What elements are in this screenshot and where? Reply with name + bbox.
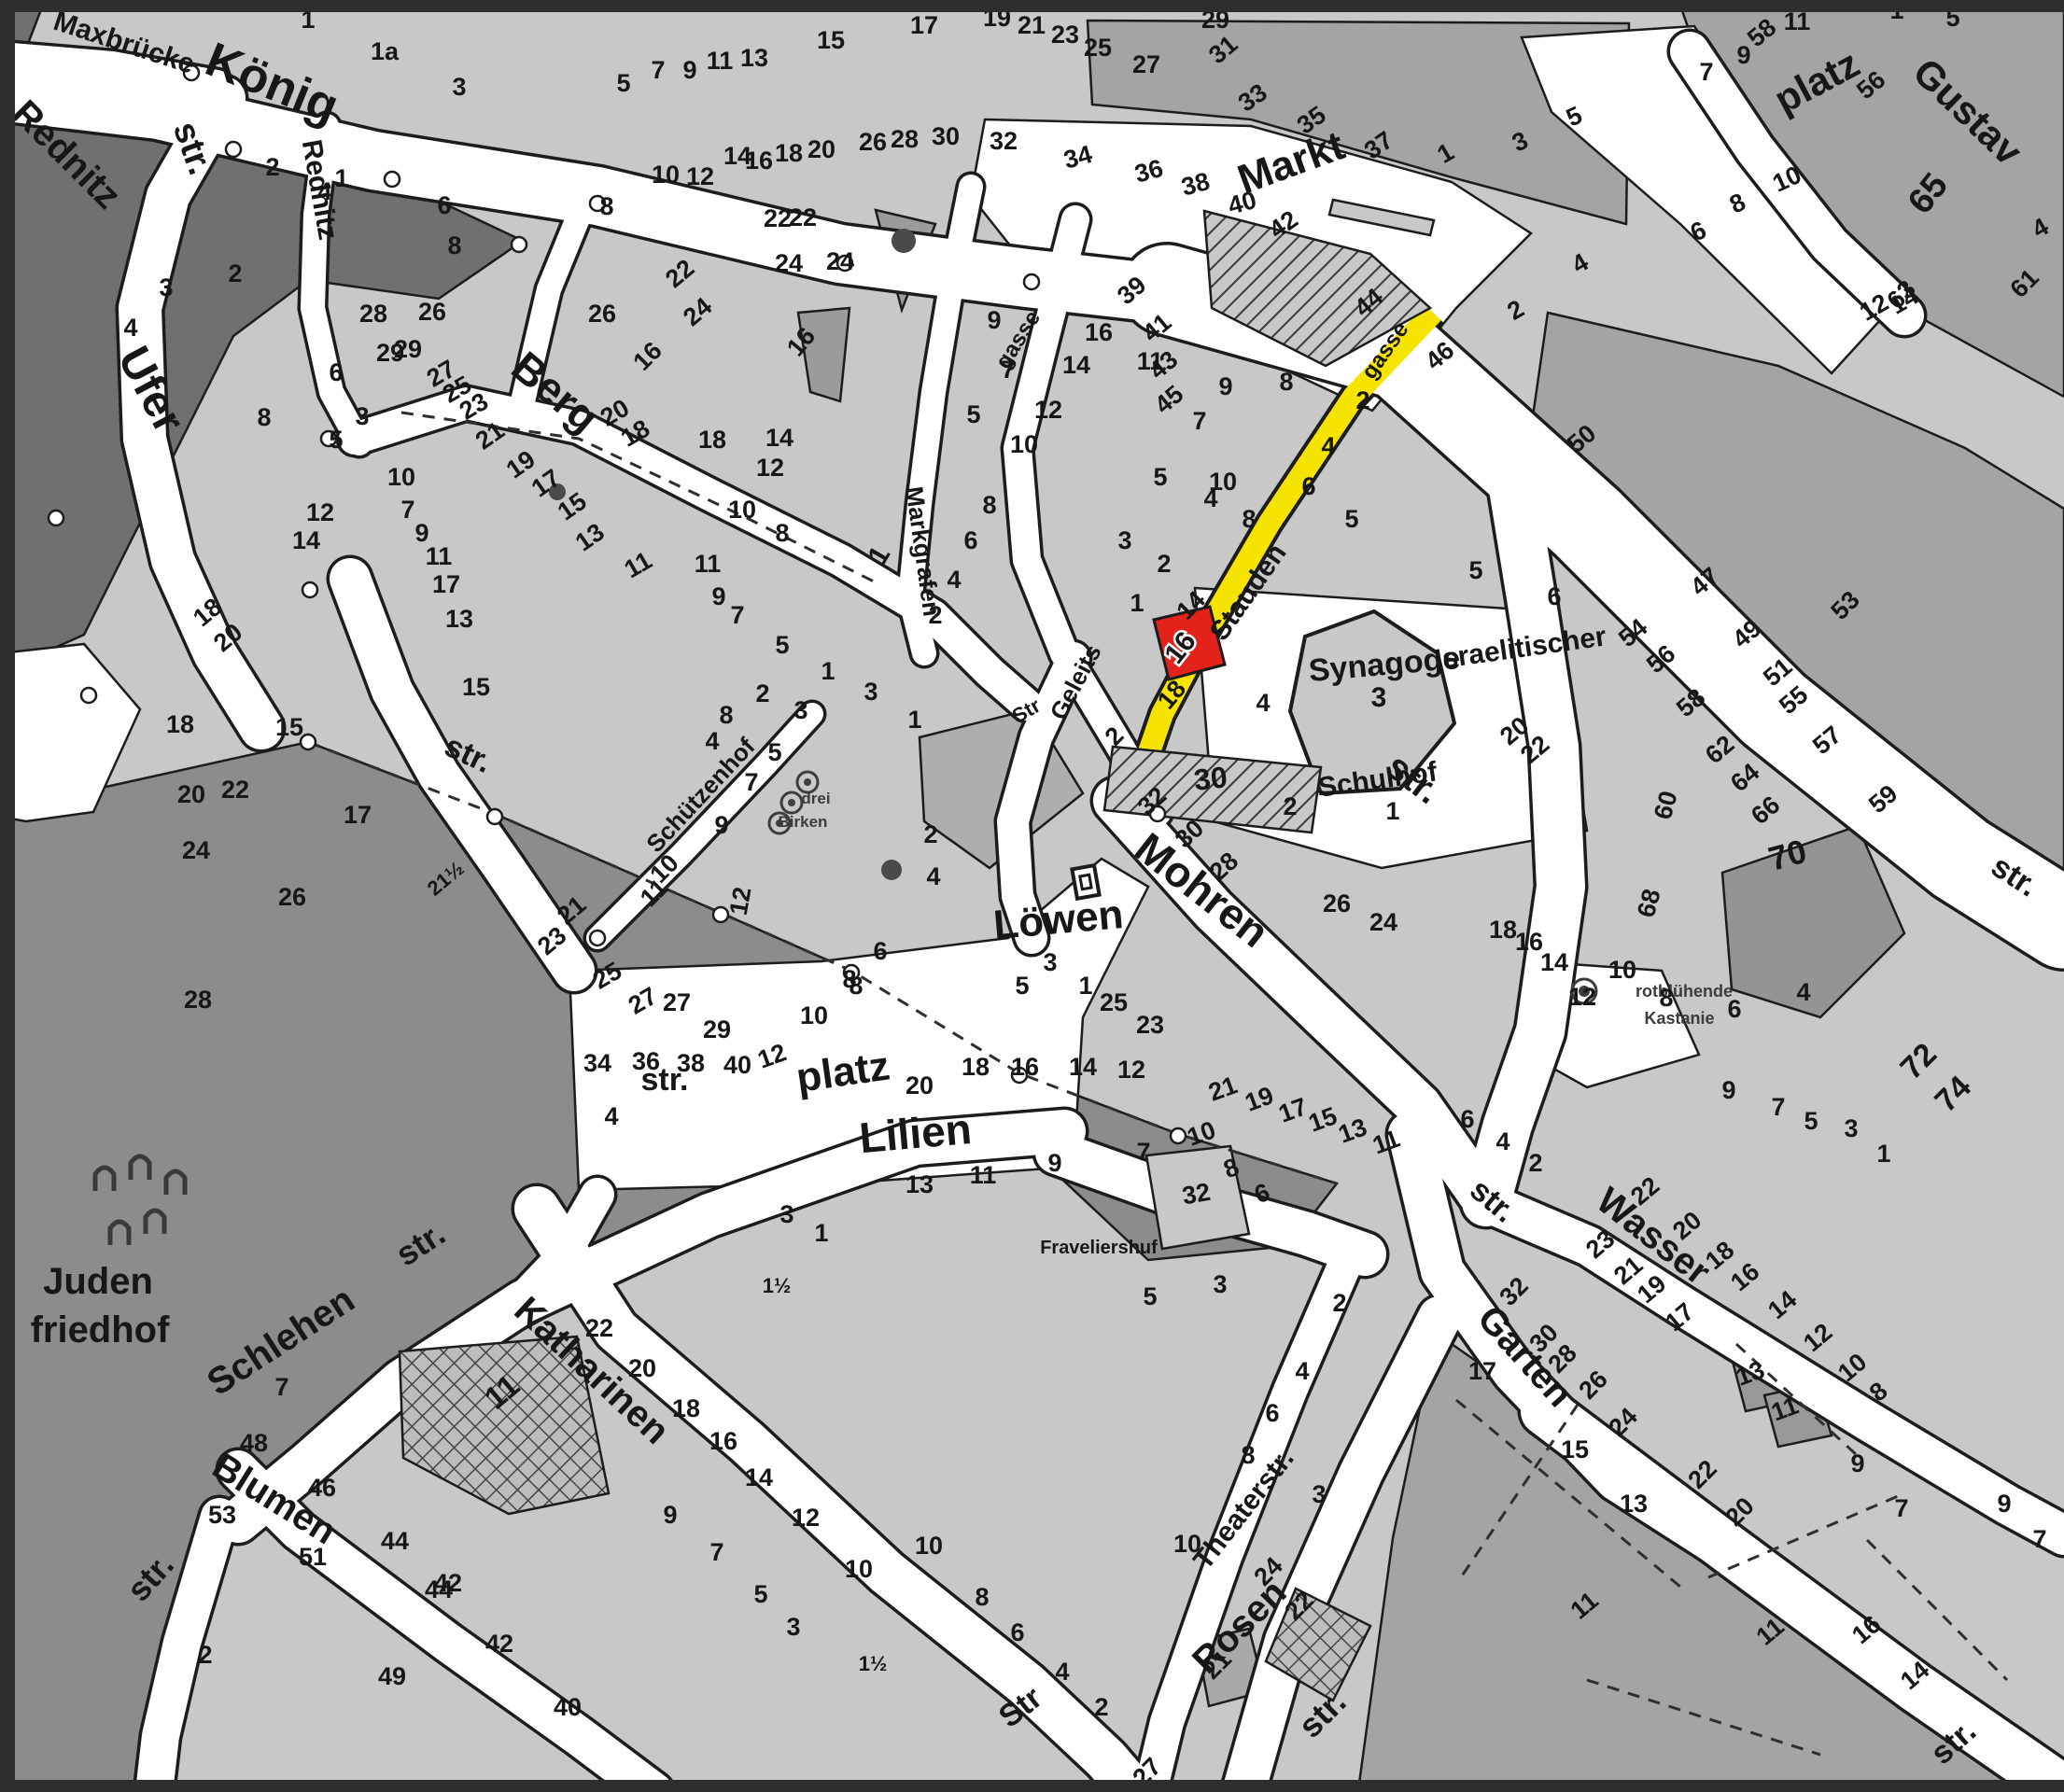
tree-icon-center-5 [788,799,795,806]
house-number-112: 15 [275,713,303,741]
house-number-153: 2 [928,601,942,629]
house-number-23: 2 [265,153,279,181]
house-number-148: 11 [695,550,722,578]
house-number-262: 1 [1078,972,1092,1000]
house-number-13: 25 [1084,34,1112,62]
house-number-129: 2 [755,679,769,707]
street-label-lilien-24: Lilien [858,1104,974,1162]
tree-icon-center-4 [804,778,811,786]
house-number-169: 2 [1157,550,1171,578]
house-number-37: 16 [745,147,773,175]
house-number-9: 17 [910,11,938,39]
house-number-140: 4 [926,862,940,890]
house-number-276: 18 [962,1053,990,1081]
house-number-315: 20 [628,1354,656,1382]
house-number-330: 44 [381,1527,409,1555]
survey-pin-13 [81,688,96,703]
house-number-201: 6 [1727,995,1741,1023]
house-number-335: 2 [198,1641,212,1669]
house-number-293: 36 [632,1047,660,1075]
house-number-254: 17 [1468,1357,1496,1385]
house-number-290: 29 [703,1015,731,1043]
house-number-289: 8 [849,972,863,1000]
house-number-193: 26 [1323,889,1351,917]
tree-icon-1 [881,860,902,880]
house-number-280: 13 [906,1170,934,1198]
house-number-264: 25 [1100,988,1128,1016]
house-number-322: 7 [709,1538,723,1566]
house-number-312: 4 [1055,1658,1069,1686]
house-number-171: 2 [1355,386,1369,414]
house-number-294: 38 [677,1049,705,1077]
survey-pin-8 [487,809,502,824]
house-number-113: 17 [344,801,372,829]
house-number-145: 12 [756,454,784,482]
house-number-275: 20 [906,1071,934,1099]
house-number-103: 13 [445,605,473,633]
house-number-146: 10 [728,496,756,524]
house-number-338: 40 [554,1693,582,1721]
house-number-314: 22 [585,1314,613,1342]
house-number-125: 1 [907,706,921,734]
house-number-61: 9 [987,306,1001,334]
house-number-173: 6 [1301,472,1315,500]
landmark-label-0: drei [801,790,830,807]
house-number-189: 2 [1283,792,1297,820]
house-number-31: 4 [123,314,137,342]
house-number-255: 15 [1561,1435,1589,1463]
house-number-186: 6 [1547,582,1561,610]
house-number-309: 10 [915,1532,943,1560]
city-map-scan: MaxbrückeKönigRednitzstr.UferRednitzBerg… [0,0,2064,1792]
house-number-261: 3 [1043,948,1057,976]
house-number-143: 18 [698,426,726,454]
house-number-303: 10 [1173,1530,1201,1558]
house-number-100: 7 [400,496,414,524]
survey-pin-4 [1024,274,1039,289]
house-number-35: 12 [686,162,714,190]
house-number-56: 8 [599,192,613,220]
house-number-117: 26 [278,883,306,911]
house-number-238: 7 [2032,1525,2046,1553]
house-number-63: 9 [1736,41,1750,69]
house-number-98: 3 [355,402,369,430]
house-number-29: 26 [418,298,446,326]
house-number-198: 12 [1568,983,1596,1011]
house-number-195: 18 [1489,916,1517,944]
house-number-211: 4 [1796,978,1810,1006]
landmark-label-2: rotblühende [1636,982,1733,1001]
house-number-127: 7 [744,768,758,796]
house-number-174: 8 [1279,368,1293,396]
house-number-236: 2 [1528,1149,1542,1177]
house-number-184: 5 [1344,505,1358,533]
house-number-223: 5 [1804,1107,1818,1135]
house-number-235: 4 [1495,1127,1509,1155]
house-number-325: 1½ [859,1652,888,1675]
house-number-296: 4 [604,1102,618,1130]
house-number-165: 7 [1192,407,1206,435]
house-number-260: 7 [1894,1494,1908,1522]
house-number-237: 9 [1997,1490,2011,1518]
house-number-28: 28 [359,300,387,328]
house-number-166: 5 [1153,463,1167,491]
house-number-44: 30 [932,122,960,150]
house-number-291: 27 [663,988,691,1016]
landmark-label-1: Birken [779,813,828,831]
house-number-130: 8 [719,701,733,729]
house-number-329: 46 [308,1474,336,1502]
house-number-336: 44 [425,1575,453,1603]
house-number-111: 18 [166,710,194,738]
house-number-224: 3 [1844,1114,1858,1142]
house-number-282: 9 [1047,1149,1061,1177]
house-number-188: 3 [1371,682,1387,713]
house-number-157: 10 [1010,430,1038,458]
house-number-311: 6 [1010,1618,1024,1646]
house-number-114: 20 [177,780,205,808]
house-number-164: 9 [1218,372,1232,400]
house-number-107: 14 [292,526,320,554]
house-number-154: 4 [947,566,961,594]
house-number-167: 3 [1117,526,1131,554]
house-number-24: 4 [317,177,331,205]
street-label-juden-30: Juden [43,1261,153,1302]
house-number-42: 26 [859,128,887,156]
house-number-160: 16 [1085,318,1113,346]
house-number-222: 7 [1771,1093,1785,1121]
house-number-300: 4 [1295,1357,1309,1385]
house-number-196: 16 [1515,928,1543,956]
house-number-286: 1½ [763,1274,792,1297]
house-number-38: 18 [775,139,803,167]
house-number-147: 8 [775,519,789,547]
house-number-288: 10 [800,1001,828,1029]
map-canvas: MaxbrückeKönigRednitzstr.UferRednitzBerg… [0,0,2064,1792]
house-number-40: 22 [789,203,817,231]
house-number-278: 14 [1069,1053,1097,1081]
house-number-161: 5 [966,400,980,428]
house-number-26: 6 [437,191,451,219]
house-number-172: 4 [1321,432,1335,460]
house-number-144: 14 [765,424,793,452]
house-number-39: 20 [807,135,835,163]
house-number-162: 7 [1001,356,1015,384]
house-number-328: 48 [240,1429,268,1457]
house-number-221: 9 [1721,1076,1735,1104]
house-number-32: 2 [228,259,242,287]
house-number-155: 6 [963,526,977,554]
house-number-1: 1a [371,37,400,65]
house-number-263: 5 [1015,972,1029,1000]
house-number-110: 17 [432,570,460,598]
house-number-45: 32 [990,127,1018,155]
survey-pin-15 [512,237,527,252]
house-number-265: 23 [1136,1011,1164,1039]
house-number-225: 1 [1876,1140,1890,1168]
house-number-313: 2 [1094,1693,1108,1721]
house-number-302: 8 [1241,1441,1255,1469]
house-number-323: 5 [753,1580,767,1608]
house-number-185: 5 [1468,556,1482,584]
scan-border-bottom [0,1780,2064,1792]
house-number-41: 24 [826,247,854,275]
house-number-141: 6 [873,937,887,965]
house-number-105: 10 [387,463,415,491]
house-number-234: 6 [1460,1105,1474,1133]
house-number-115: 22 [221,776,249,804]
house-number-96: 6 [329,358,343,386]
street-label-friedhof-31: friedhof [31,1309,171,1351]
house-number-284: 3 [779,1200,793,1228]
house-number-321: 9 [663,1501,677,1529]
survey-pin-6 [302,582,317,597]
house-number-131: 4 [705,727,719,755]
house-number-299: 2 [1332,1289,1346,1317]
house-number-60: 22 [764,204,792,232]
house-number-62: 7 [1699,58,1713,86]
house-number-5: 9 [682,56,696,84]
house-number-102: 11 [426,542,453,570]
house-number-297: 5 [1143,1282,1157,1310]
house-number-7: 13 [740,44,768,72]
house-number-149: 9 [711,582,725,610]
house-number-151: 5 [775,631,789,659]
house-number-6: 11 [707,47,734,75]
house-number-120: 32 [1180,1178,1213,1211]
house-number-168: 1 [1130,589,1144,617]
house-number-123: 3 [793,696,807,724]
house-number-175: 10 [1209,468,1237,496]
tree-icon-0 [892,229,916,253]
house-number-27: 8 [447,231,461,259]
survey-pin-1 [385,172,400,187]
house-number-126: 5 [767,738,781,766]
house-number-256: 13 [1620,1490,1648,1518]
house-number-259: 9 [1850,1449,1864,1477]
house-number-138: 12 [724,885,757,917]
house-number-281: 11 [970,1161,997,1189]
house-number-180: 4 [1256,689,1270,717]
house-number-59: 24 [775,249,803,277]
survey-pin-17 [590,931,605,945]
house-number-118: 28 [184,986,212,1014]
house-number-25: 1 [334,164,348,192]
house-number-122: 1 [821,657,835,685]
house-number-43: 28 [891,125,919,153]
house-number-317: 16 [709,1427,737,1455]
street-label-fraveliershuf-29: Fraveliershuf [1040,1238,1158,1258]
house-number-150: 7 [730,601,744,629]
house-number-121: 30 [1192,760,1229,797]
house-number-197: 14 [1540,948,1568,976]
house-number-124: 3 [864,678,878,706]
house-number-57: 26 [588,300,616,328]
house-number-176: 8 [1242,505,1256,533]
house-number-158: 12 [1034,396,1062,424]
house-number-279: 12 [1117,1056,1145,1084]
house-number-333: 51 [299,1543,327,1571]
scan-border-top [0,0,2064,12]
house-number-159: 14 [1062,351,1090,379]
house-number-99: 5 [329,426,343,454]
house-number-34: 10 [652,161,680,189]
house-number-97: 8 [257,403,271,431]
house-number-3: 5 [616,69,630,97]
survey-pin-0 [226,142,241,157]
house-number-318: 14 [745,1463,773,1491]
scan-border-left [0,0,15,1792]
house-number-12: 23 [1051,21,1079,49]
house-number-194: 24 [1369,908,1397,936]
house-number-320: 10 [845,1555,873,1583]
house-number-319: 12 [792,1504,820,1532]
house-number-14: 27 [1132,50,1160,78]
house-number-310: 8 [975,1583,989,1611]
house-number-11: 21 [1018,11,1046,39]
landmark-label-3: Kastanie [1644,1009,1714,1028]
house-number-292: 34 [583,1049,611,1077]
house-number-332: 53 [208,1501,236,1529]
house-number-295: 40 [723,1051,751,1079]
house-number-156: 8 [982,491,996,519]
house-number-327: 7 [274,1373,288,1401]
survey-pin-12 [1171,1128,1186,1143]
house-number-8: 15 [817,26,845,54]
house-number-334: 49 [378,1662,406,1690]
house-number-200: 8 [1659,984,1673,1012]
house-number-277: 16 [1011,1053,1039,1081]
house-number-30: 3 [159,273,173,301]
house-number-283: 7 [1136,1138,1150,1166]
house-number-298: 3 [1213,1270,1227,1298]
house-number-324: 3 [786,1613,800,1641]
house-number-301: 6 [1265,1399,1279,1427]
survey-pin-18 [49,511,63,525]
house-number-128: 9 [714,811,728,839]
house-number-104: 15 [462,673,490,701]
house-number-199: 10 [1608,956,1636,984]
house-number-84: 29 [394,335,422,363]
house-number-337: 42 [485,1630,513,1658]
house-number-190: 1 [1385,797,1399,825]
house-number-316: 18 [672,1394,700,1422]
house-number-4: 7 [651,56,665,84]
house-number-308: 3 [1312,1480,1326,1508]
house-number-163: 11 [1137,347,1164,375]
house-number-139: 2 [923,820,937,848]
house-number-2: 3 [452,73,466,101]
house-number-285: 1 [814,1219,828,1247]
house-number-116: 24 [182,836,210,864]
house-number-106: 12 [306,498,334,526]
